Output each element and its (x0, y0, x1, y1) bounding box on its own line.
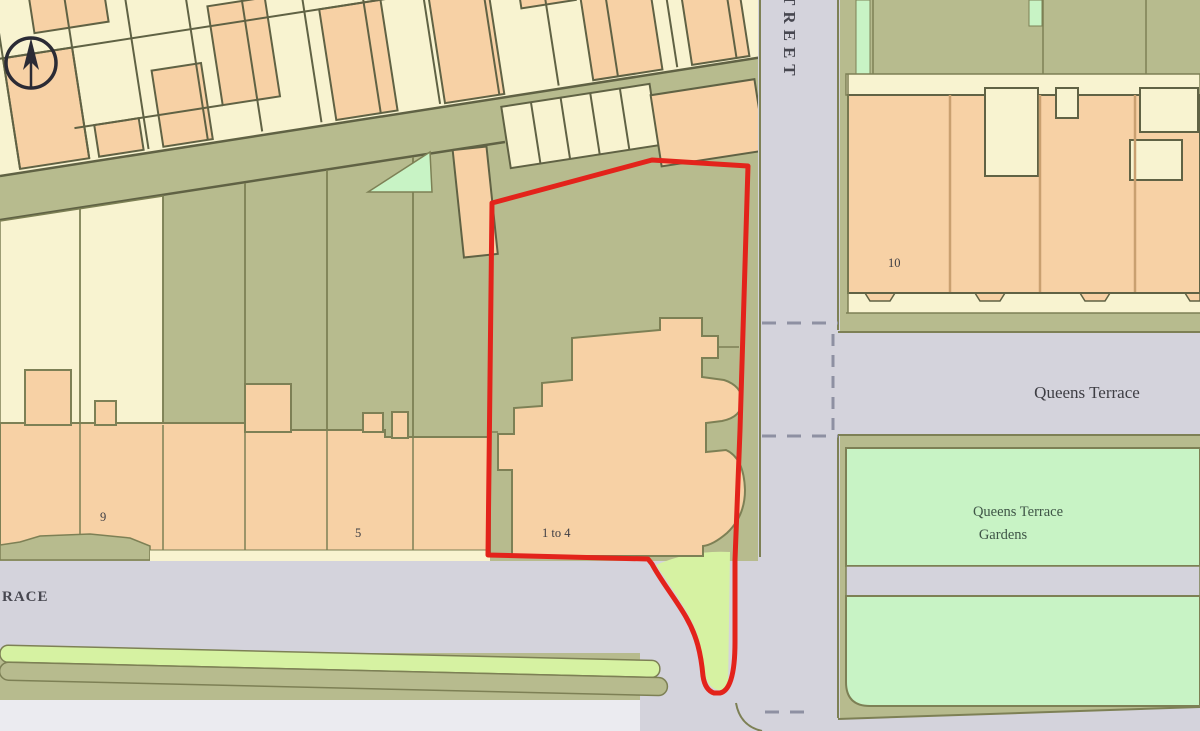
map-canvas: TREET RACE Queens Terrace Queens Terrace… (0, 0, 1200, 731)
north-building (651, 79, 766, 166)
gardens-label-line2: Gardens (979, 527, 1028, 543)
street (758, 0, 840, 731)
gardens-path (846, 566, 1200, 596)
street-name-label: TREET (780, 0, 799, 82)
queens-terrace-label: Queens Terrace (1034, 383, 1140, 402)
house-9-label: 9 (100, 510, 106, 524)
pavement (0, 700, 680, 731)
gardens-label-line1: Queens Terrace (973, 504, 1063, 520)
house-10-label: 10 (888, 256, 901, 270)
plot-number-label: 1 to 4 (542, 526, 571, 540)
terrace-road-label: RACE (2, 589, 49, 605)
queens-terrace-road (840, 332, 1200, 435)
house-5-label: 5 (355, 526, 361, 540)
gardens (846, 448, 1200, 706)
site-plan-map: TREET RACE Queens Terrace Queens Terrace… (0, 0, 1200, 731)
